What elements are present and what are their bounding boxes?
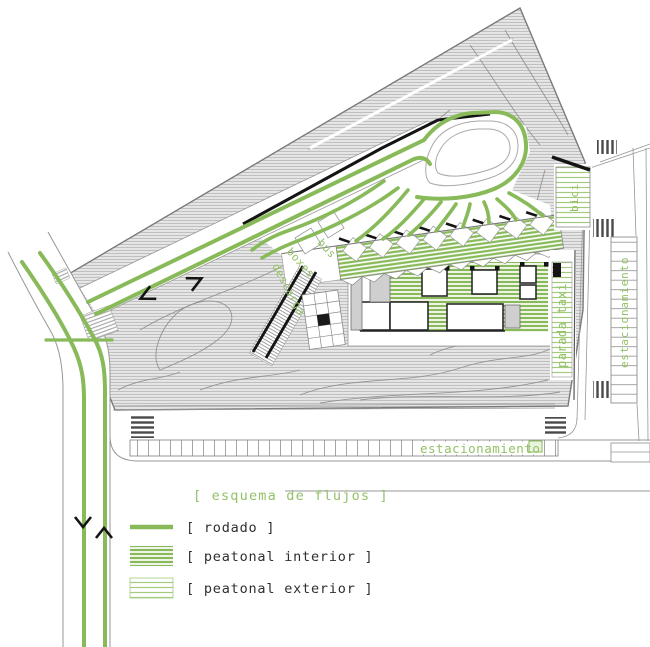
boxes-grid bbox=[302, 290, 345, 349]
label-parking-bottom: estacionamiento bbox=[420, 441, 540, 456]
crosswalk-right-upper bbox=[593, 219, 614, 237]
bottom-street bbox=[110, 404, 650, 491]
crosswalk-bottom-right bbox=[545, 417, 566, 436]
crosswalk-right-top bbox=[597, 140, 617, 154]
label-parada-taxi: parada taxi bbox=[555, 283, 569, 368]
legend-label-rodado: [ rodado ] bbox=[186, 520, 275, 536]
flow-scheme-drawing: estacionamiento estacionamiento bici par… bbox=[0, 0, 650, 647]
legend-title: [ esquema de flujos ] bbox=[193, 488, 389, 504]
label-bici: bici bbox=[568, 184, 581, 213]
label-parking-right: estacionamiento bbox=[618, 257, 631, 368]
legend-label-peatonal-exterior: [ peatonal exterior ] bbox=[186, 581, 373, 597]
legend-swatch-peatonal-exterior bbox=[130, 578, 173, 598]
crosswalk-bottom-left bbox=[131, 416, 154, 438]
site-plan-page: estacionamiento estacionamiento bici par… bbox=[0, 0, 650, 647]
legend-label-peatonal-interior: [ peatonal interior ] bbox=[186, 549, 373, 565]
legend: [ esquema de flujos ] [ rodado ] [ peato… bbox=[130, 488, 389, 598]
corner-block bbox=[611, 443, 650, 462]
legend-swatch-peatonal-interior bbox=[130, 546, 173, 566]
